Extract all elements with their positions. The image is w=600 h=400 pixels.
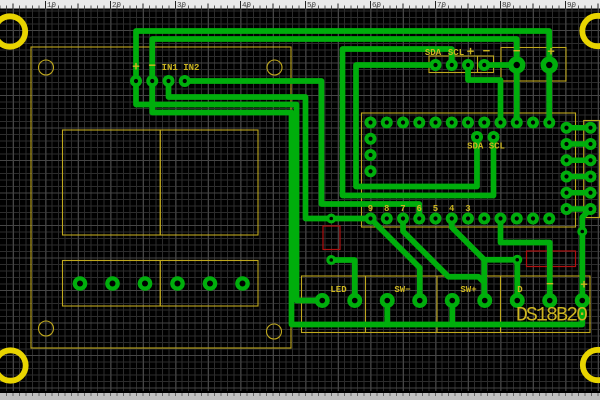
svg-text:DS18B20: DS18B20 [516,305,587,328]
svg-text:8: 8 [384,204,389,214]
svg-text:SDA SCL: SDA SCL [467,142,505,152]
svg-text:40: 40 [242,2,252,10]
svg-text:30: 30 [177,2,187,10]
svg-text:+: + [547,45,555,60]
svg-text:7: 7 [400,204,405,214]
svg-text:+: + [467,45,475,60]
svg-text:80: 80 [502,2,512,10]
svg-text:SCL: SCL [448,48,464,58]
svg-text:60: 60 [372,2,382,10]
svg-text:D: D [517,285,523,295]
svg-text:−: − [513,44,521,59]
svg-text:LED: LED [330,285,347,295]
svg-text:5: 5 [433,204,438,214]
svg-text:−: − [483,44,491,59]
svg-text:3: 3 [465,204,470,214]
svg-text:90: 90 [567,2,577,10]
svg-text:6: 6 [417,204,422,214]
svg-text:+: + [132,60,140,75]
svg-text:−: − [546,277,554,292]
svg-text:+: + [580,278,588,293]
svg-text:10: 10 [47,2,57,10]
svg-text:−: − [148,59,156,74]
svg-text:9: 9 [368,204,373,214]
svg-text:70: 70 [437,2,447,10]
svg-text:4: 4 [449,204,455,214]
svg-text:SDA: SDA [425,48,442,58]
svg-text:SW+: SW+ [460,285,476,295]
svg-text:50: 50 [307,2,317,10]
svg-text:SW−: SW− [394,285,410,295]
svg-text:20: 20 [112,2,122,10]
svg-text:IN1 IN2: IN1 IN2 [162,63,200,73]
